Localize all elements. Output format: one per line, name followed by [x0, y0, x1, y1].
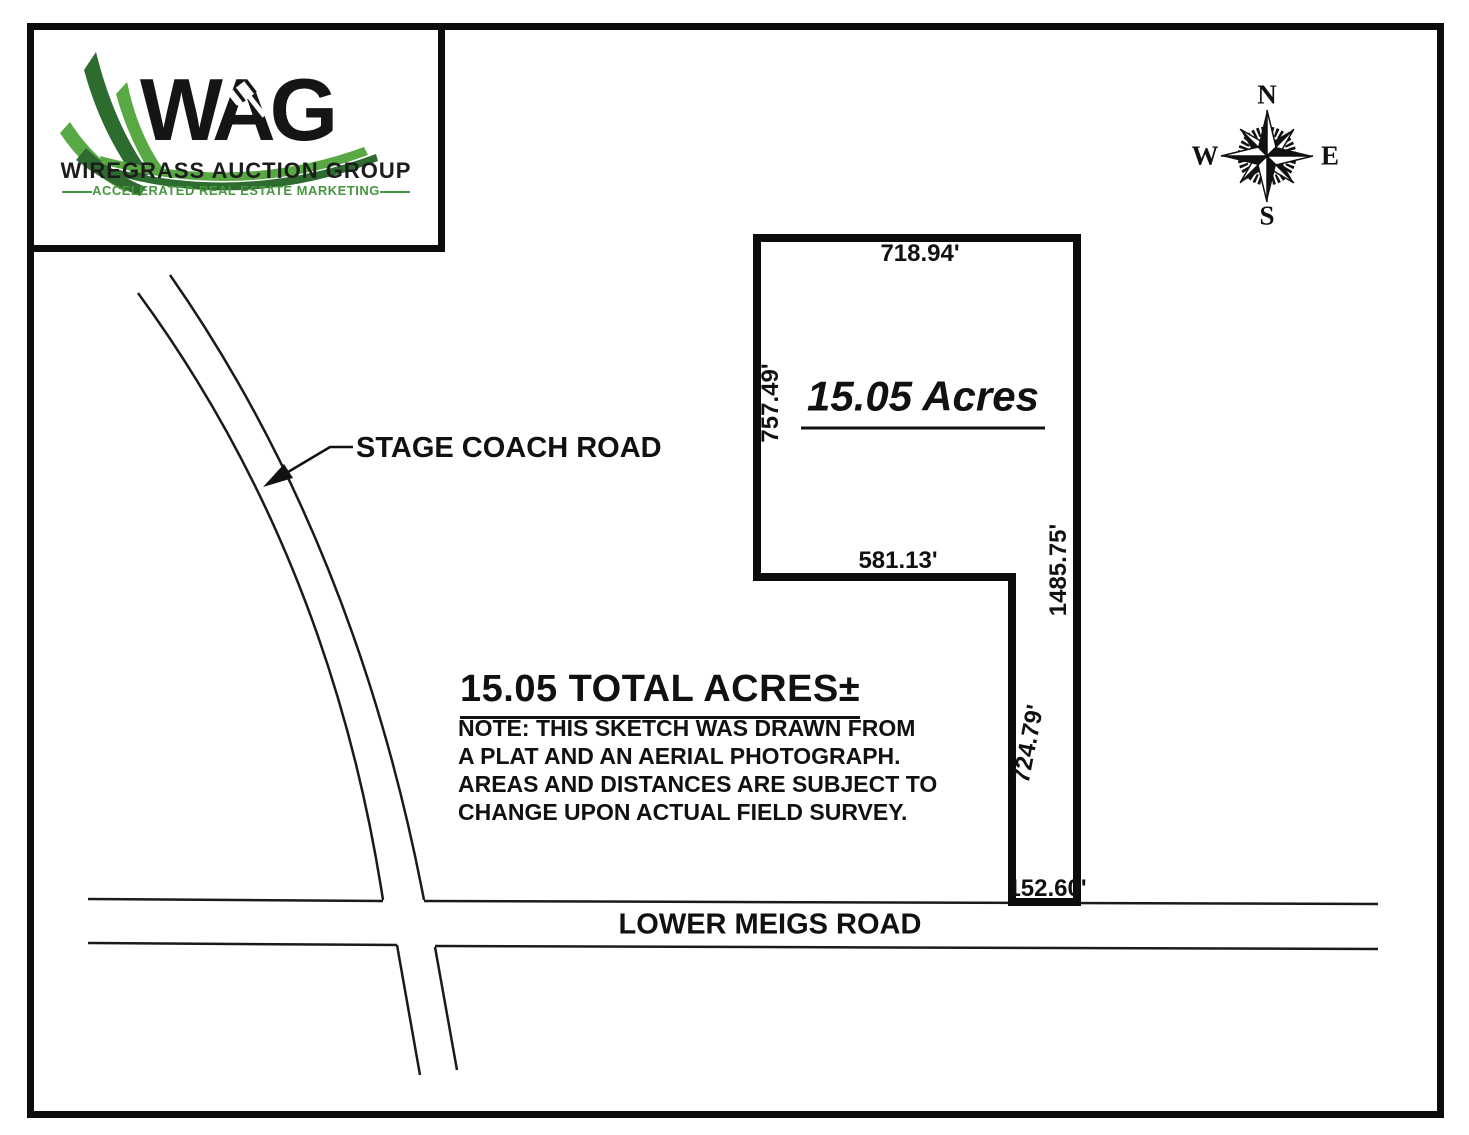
compass-north-label: N: [1257, 80, 1277, 111]
dimension-right: 1485.75': [1045, 524, 1073, 616]
tagline-dash-left: [62, 191, 92, 193]
survey-note-text: NOTE: THIS SKETCH WAS DRAWN FROM A PLAT …: [458, 714, 937, 826]
compass-south-label: S: [1259, 201, 1274, 232]
dimension-bottom: 152.60': [1007, 875, 1086, 903]
total-acres-heading: 15.05 TOTAL ACRES±: [460, 668, 860, 719]
compass-west-label: W: [1192, 141, 1219, 172]
dimension-top: 718.94': [880, 240, 959, 268]
logo-tagline: ACCELERATED REAL ESTATE MARKETING: [34, 183, 438, 198]
compass-rose-icon: [1221, 110, 1313, 202]
survey-sketch-page: N E S W WAG WIREGRASS AUCTION GROUP ACCE…: [0, 0, 1469, 1135]
compass-east-label: E: [1321, 141, 1339, 172]
gavel-icon: [210, 70, 280, 125]
logo-company-name: WIREGRASS AUCTION GROUP: [34, 158, 438, 184]
wiregrass-auction-group-logo: WAG WIREGRASS AUCTION GROUP ACCELERATED …: [27, 23, 445, 252]
stage-coach-road-label: STAGE COACH ROAD: [356, 432, 662, 465]
tagline-dash-right: [380, 191, 410, 193]
parcel-acres-label: 15.05 Acres: [801, 373, 1045, 430]
dimension-step: 581.13': [858, 547, 937, 575]
stage-coach-road-lines: [138, 275, 457, 1075]
dimension-left: 757.49': [757, 363, 785, 442]
lower-meigs-road-label: LOWER MEIGS ROAD: [619, 909, 922, 942]
